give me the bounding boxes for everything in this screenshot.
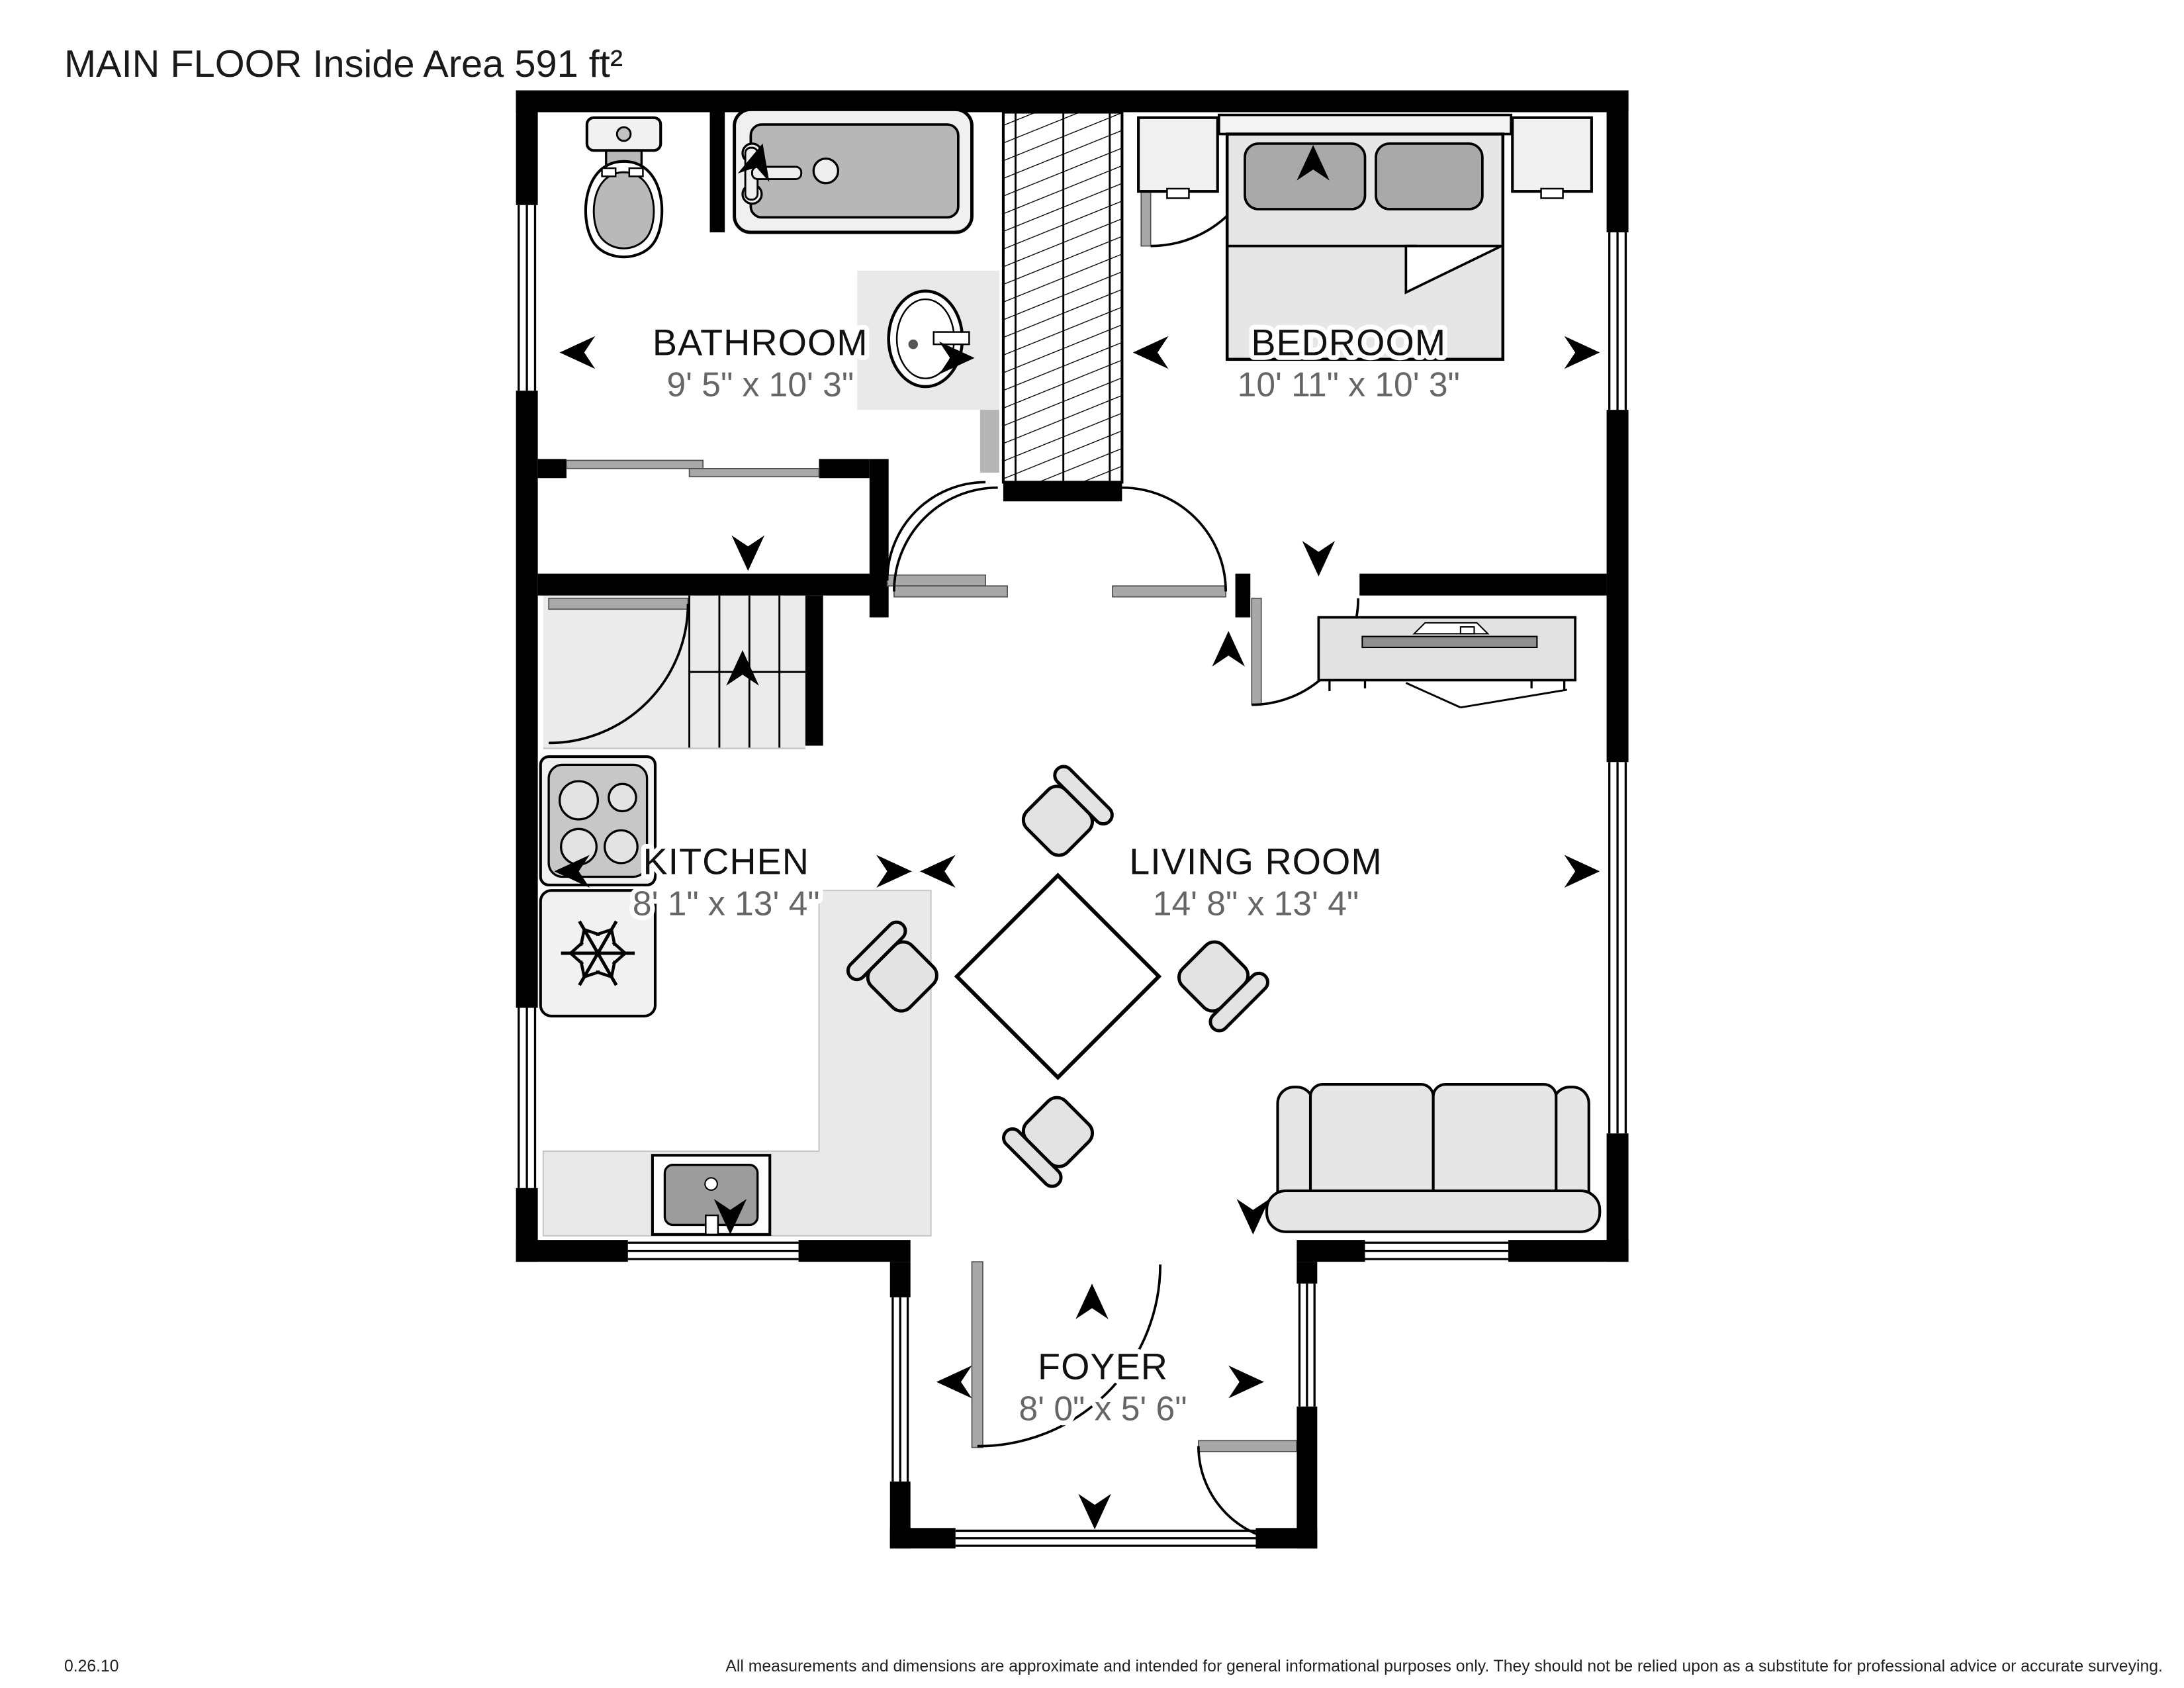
footer: 0.26.10 All measurements and dimensions … [64, 1658, 2163, 1675]
nightstand-icon [1138, 118, 1218, 199]
arrow-icon [1565, 336, 1600, 369]
arrow-icon [1228, 1366, 1264, 1399]
foyer-bottom-window [956, 1530, 1256, 1546]
arrow-icon [732, 536, 765, 571]
arrow-icon [1078, 1494, 1111, 1530]
foyer-left-window [893, 1297, 908, 1481]
arrow-icon [936, 1366, 972, 1399]
arrow-icon [920, 855, 956, 888]
chair-icon [1168, 931, 1271, 1035]
arrow-icon [560, 336, 596, 369]
room-dim-kitchen: 8' 1" x 13' 4" [633, 884, 820, 922]
sofa-icon [1267, 1084, 1600, 1232]
closet-bypass-door [567, 460, 819, 477]
arrow-icon [1133, 336, 1169, 369]
bathroom-shelf [980, 410, 999, 473]
tv-console-icon [1318, 618, 1575, 708]
toilet-icon [586, 118, 662, 257]
room-dim-bedroom: 10' 11" x 10' 3" [1238, 365, 1460, 404]
room-label-foyer: FOYER [1038, 1346, 1168, 1387]
room-dim-bathroom: 9' 5" x 10' 3" [666, 365, 854, 404]
foyer-entry-door [1199, 1440, 1297, 1542]
room-dim-living-room: 14' 8" x 13' 4" [1153, 884, 1359, 922]
room-label-kitchen: KITCHEN [643, 841, 809, 882]
chair-icon [1000, 1087, 1103, 1190]
chair-icon [1013, 763, 1116, 866]
bathroom-window [519, 205, 535, 391]
bathroom-door [887, 482, 986, 586]
kitchen-sink-icon [653, 1155, 770, 1235]
arrow-icon [1302, 541, 1336, 577]
living-bottom-window [1365, 1243, 1509, 1259]
version-label: 0.26.10 [64, 1658, 119, 1675]
stove-icon [541, 757, 655, 885]
floor-plan-canvas: MAIN FLOOR Inside Area 591 ft² [0, 0, 2184, 1688]
kitchen-bottom-window [628, 1243, 799, 1259]
arrow-icon [1075, 1284, 1109, 1319]
room-label-living-room: LIVING ROOM [1129, 841, 1383, 882]
floor-areas [543, 271, 999, 1236]
living-room-furniture [844, 618, 1600, 1232]
nightstand-icon [1512, 118, 1592, 199]
room-dim-foyer: 8' 0" x 5' 6" [1019, 1389, 1187, 1427]
disclaimer-text: All measurements and dimensions are appr… [725, 1658, 2162, 1675]
hall-double-door-right [1113, 488, 1226, 597]
kitchen-window [519, 1008, 535, 1188]
arrow-icon [1237, 1199, 1270, 1235]
hatched-closet-strip [1003, 113, 1122, 483]
foyer-right-window [1300, 1284, 1315, 1407]
living-room-window [1610, 762, 1626, 1133]
room-label-bathroom: BATHROOM [653, 322, 868, 363]
arrow-icon [1212, 631, 1246, 667]
page-title: MAIN FLOOR Inside Area 591 ft² [64, 43, 623, 85]
arrow-icon [1565, 855, 1600, 888]
arrow-icon [876, 855, 912, 888]
floor-plan-page: MAIN FLOOR Inside Area 591 ft² [0, 0, 2184, 1688]
room-label-bedroom: BEDROOM [1251, 322, 1446, 363]
bathtub-icon [735, 109, 972, 232]
bedroom-window [1610, 232, 1626, 410]
